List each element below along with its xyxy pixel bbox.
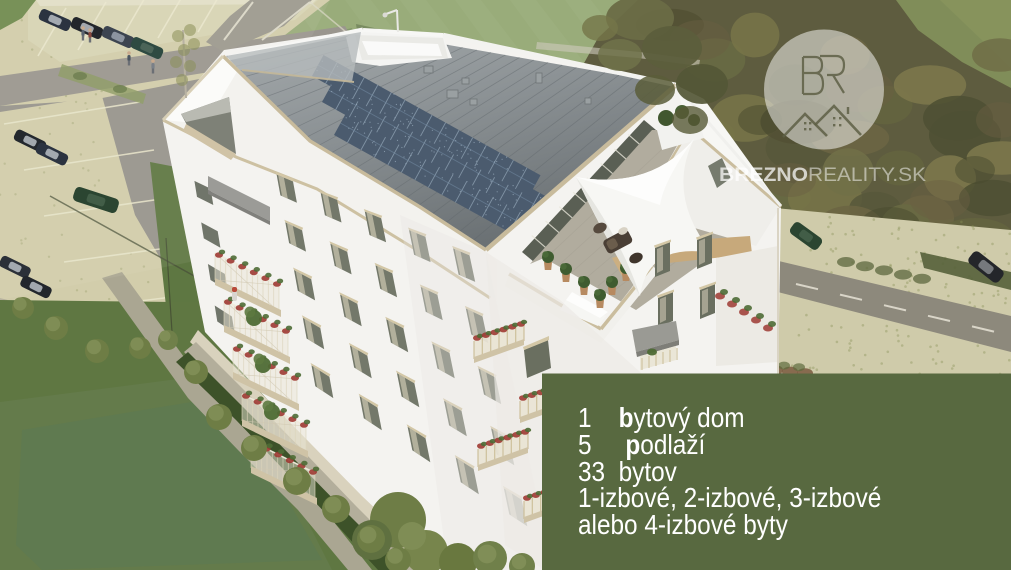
svg-text:BREZNO: BREZNO: [719, 165, 808, 186]
svg-text:REALITY.SK: REALITY.SK: [808, 165, 926, 186]
